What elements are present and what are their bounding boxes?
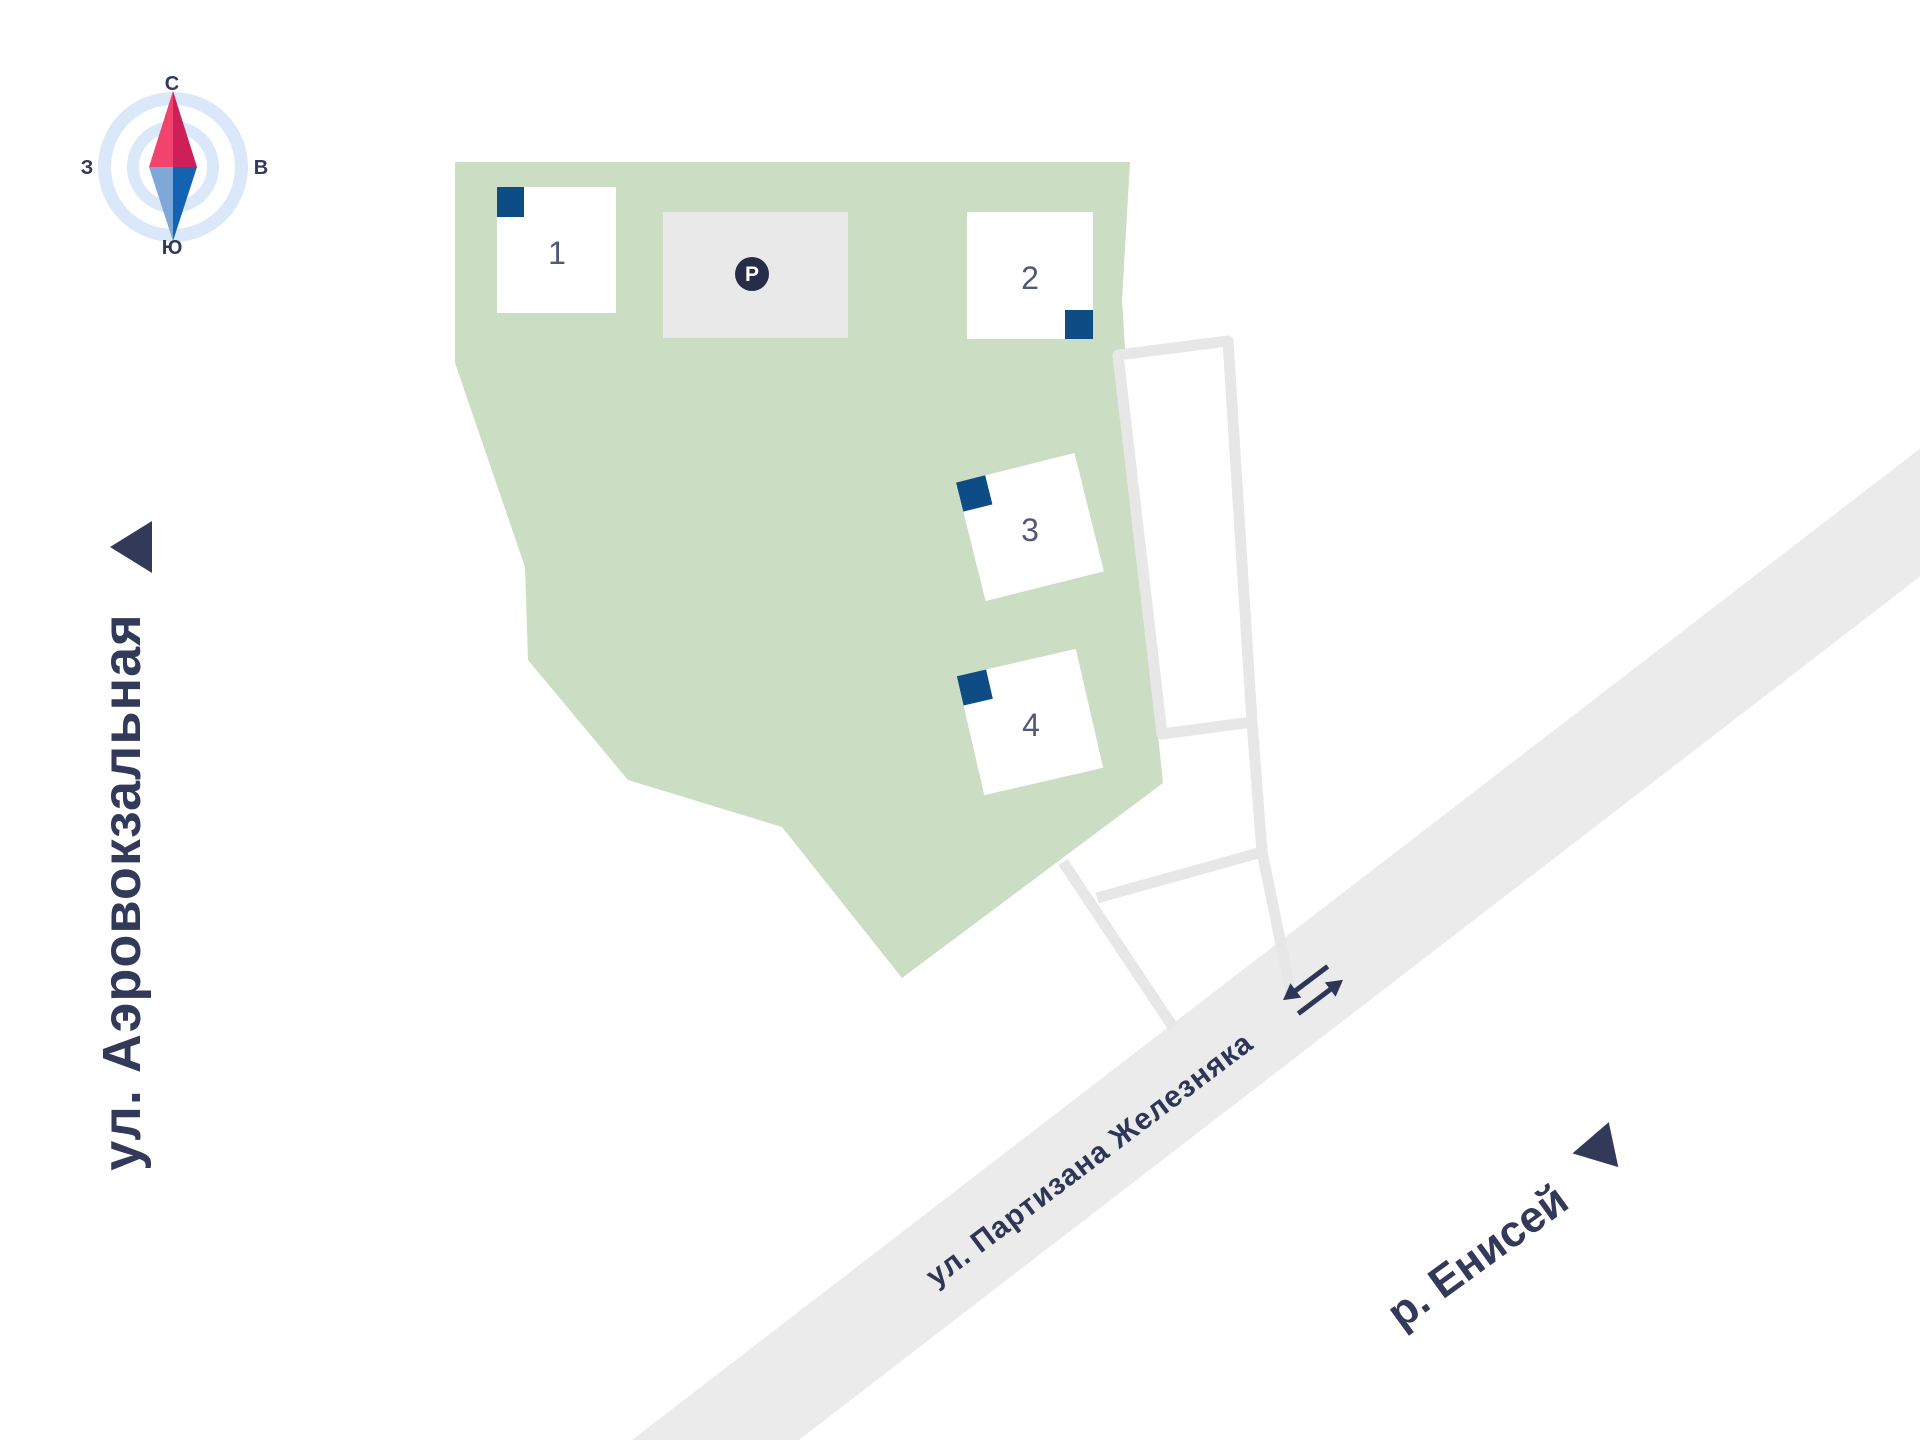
compass-north-label: С <box>165 74 179 94</box>
street-left-label: ул. Аэровокзальная <box>91 613 153 1170</box>
street-left-direction-icon <box>110 521 152 573</box>
building-1-corner-marker <box>497 187 524 217</box>
building-2[interactable] <box>967 212 1093 339</box>
map-geometry <box>0 0 1920 1440</box>
compass-east-label: В <box>254 158 268 178</box>
compass-south-label: Ю <box>162 238 183 258</box>
parking-icon: P <box>735 257 769 291</box>
parcel-divider-line <box>1097 852 1262 898</box>
building-1[interactable] <box>497 187 616 313</box>
compass-west-label: З <box>81 158 94 178</box>
compass-needle-icon <box>149 91 197 241</box>
site-plan-map: С В Ю З ул. Аэровокзальная 1 2 3 4 P ул.… <box>0 0 1920 1440</box>
building-2-corner-marker <box>1065 310 1093 339</box>
